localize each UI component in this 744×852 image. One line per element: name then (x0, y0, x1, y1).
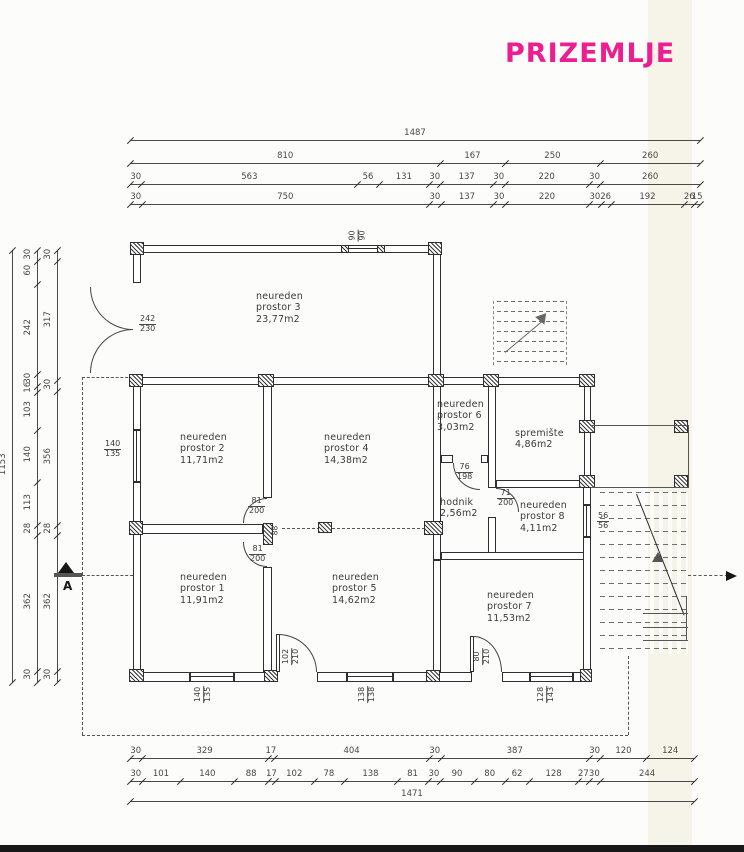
dimension-value: 220 (527, 173, 567, 182)
dimension-value: 17 (251, 747, 291, 756)
pillar-hatch (341, 245, 349, 253)
dimension-value: 88 (231, 770, 271, 779)
dimension-line (130, 801, 694, 802)
opening-size-label: 9090 (349, 229, 368, 241)
wall-segment (133, 377, 593, 385)
dimension-value: 30 (479, 173, 519, 182)
dimension-tick (54, 377, 61, 384)
dimension-tick (426, 755, 433, 762)
dimension-value: 30 (116, 770, 156, 779)
scan-bottom-bar (0, 845, 744, 852)
dimension-tick (138, 181, 145, 188)
dimension-value: 362 (44, 586, 53, 616)
stair-direction-arrow (652, 552, 664, 562)
staircase (596, 492, 688, 654)
dimension-tick (34, 522, 41, 529)
dimension-line (57, 250, 58, 682)
terrace-outline (688, 425, 689, 488)
dimension-value: 404 (332, 747, 372, 756)
dimension-value: 30 (24, 363, 33, 393)
pillar-hatch (318, 522, 332, 533)
dimension-tick (586, 755, 593, 762)
dimension-value: 329 (185, 747, 225, 756)
dimension-tick (127, 798, 134, 805)
dimension-row-top-4: 30750301373022030261922615 (0, 0, 744, 852)
dimension-tick (127, 201, 134, 208)
window (347, 672, 393, 682)
staircase-edge (686, 596, 687, 641)
dimension-tick (608, 201, 615, 208)
dimension-value: 1153 (0, 449, 7, 479)
wall-segment (502, 672, 530, 682)
dimension-tick (34, 427, 41, 434)
dimension-value: 28 (44, 513, 53, 543)
dimension-value: 103 (24, 394, 33, 424)
floorplan-sheet: PRIZEMLJE 1487 810167250260 305635613130… (0, 0, 744, 852)
dimension-value: 30 (575, 193, 615, 202)
dimension-tick (138, 201, 145, 208)
pillar-hatch (428, 242, 442, 255)
dimension-row-bottom-total: 1471 (0, 0, 744, 852)
dimension-tick (34, 479, 41, 486)
section-marker-label: A (63, 579, 72, 593)
room-label-prostor-5: neureden prostor 5 14,62m2 (332, 572, 379, 606)
dimension-value: 317 (44, 304, 53, 334)
dimension-line (130, 184, 700, 185)
dimension-tick (354, 181, 361, 188)
dimension-line (130, 204, 700, 205)
dimension-tick (376, 181, 383, 188)
window (348, 245, 378, 253)
dimension-line (130, 140, 700, 141)
dimension-tick (394, 778, 401, 785)
dimension-row-bottom-1: 30329174043038730120124 (0, 0, 744, 852)
entrance-stairs (493, 301, 567, 365)
opening-size-label: 80210 (473, 648, 492, 665)
dimension-tick (585, 778, 592, 785)
dimension-tick (575, 778, 582, 785)
dimension-tick (501, 160, 508, 167)
dimension-tick (437, 160, 444, 167)
dimension-value: 26 (586, 193, 626, 202)
dimension-tick (597, 181, 604, 188)
dimension-tick (265, 755, 272, 762)
dimension-value: 30 (24, 239, 33, 269)
dimension-tick (586, 181, 593, 188)
opening-size-label: 128143 (537, 686, 556, 703)
dimension-value: 90 (437, 770, 477, 779)
pillar-hatch (377, 245, 385, 253)
dashed-interior-wall (282, 528, 425, 529)
pillar-hatch (426, 670, 440, 682)
room-label-prostor-3: neureden prostor 3 23,77m2 (256, 291, 303, 325)
dimension-tick (177, 778, 184, 785)
pillar-hatch (579, 374, 595, 387)
dimension-value: 81 (393, 770, 433, 779)
wall-segment (433, 560, 441, 672)
dimension-value: 30 (574, 770, 614, 779)
dimension-value: 750 (265, 193, 305, 202)
dimension-tick (426, 181, 433, 188)
room-label-prostor-8: neureden prostor 8 4,11m2 (520, 500, 567, 534)
dimension-value: 128 (534, 770, 574, 779)
wall-segment (441, 552, 591, 560)
opening-size-label: 5656 (597, 512, 609, 531)
dimension-tick (526, 778, 533, 785)
dimension-tick (597, 755, 604, 762)
dimension-value: 250 (532, 152, 572, 161)
dimension-value: 28 (24, 513, 33, 543)
dimension-tick (697, 181, 704, 188)
dimension-tick (501, 181, 508, 188)
opening-size-label: 71200 (497, 489, 514, 508)
dimension-value: 30 (44, 239, 53, 269)
dimension-value: 30 (415, 193, 455, 202)
pillar-hatch (428, 374, 444, 387)
dimension-value: 810 (265, 152, 305, 161)
dashed-outline-top (82, 377, 133, 378)
dimension-value: 80 (470, 770, 510, 779)
dimension-tick (138, 755, 145, 762)
staircase-landing (643, 640, 688, 641)
wall-segment (263, 385, 272, 498)
wall-segment (496, 480, 591, 488)
pillar-hatch (580, 669, 592, 682)
dimension-value: 102 (274, 770, 314, 779)
dimension-value: 30 (575, 173, 615, 182)
dimension-row-bottom-2: 3010114088171027813881309080621282730244 (0, 0, 744, 852)
dimension-tick (437, 755, 444, 762)
room-label-prostor-2: neureden prostor 2 11,71m2 (180, 432, 227, 466)
dimension-value: 356 (44, 441, 53, 471)
dimension-line (12, 250, 13, 682)
dimension-line (130, 781, 694, 782)
dimension-tick (54, 668, 61, 675)
pillar-hatch (129, 521, 143, 535)
terrace-outline (591, 425, 689, 426)
dimension-tick (502, 778, 509, 785)
dimension-value: 30 (415, 173, 455, 182)
dashed-outline-bottom (82, 735, 628, 736)
dimension-tick (127, 137, 134, 144)
wall-segment (393, 672, 427, 682)
room-label-prostor-6: neureden prostor 6 3,03m2 (437, 399, 484, 433)
dimension-value: 62 (497, 770, 537, 779)
dimension-tick (597, 160, 604, 167)
dimension-tick (265, 778, 272, 785)
dimension-value: 167 (452, 152, 492, 161)
dimension-tick (34, 258, 41, 265)
dimension-value: 387 (495, 747, 535, 756)
wall-segment (488, 385, 496, 488)
dimension-tick (272, 778, 279, 785)
pillar-hatch (130, 242, 144, 255)
dimension-line (37, 250, 38, 682)
wall-segment (583, 537, 591, 682)
dimension-line (130, 163, 700, 164)
wall-segment (317, 672, 347, 682)
dimension-tick (471, 778, 478, 785)
dimension-tick (34, 388, 41, 395)
opening-size-label: 102210 (282, 648, 301, 665)
dimension-value: 362 (24, 586, 33, 616)
dimension-value: 140 (24, 440, 33, 470)
dimension-line (130, 758, 694, 759)
wall-segment (441, 455, 453, 463)
dimension-tick (127, 160, 134, 167)
dimension-tick (437, 778, 444, 785)
window (530, 672, 573, 682)
dimension-tick (54, 532, 61, 539)
dimension-value: 27 (563, 770, 603, 779)
dimension-value: 563 (229, 173, 269, 182)
dimension-tick (502, 201, 509, 208)
wall-segment (481, 455, 488, 463)
dimension-tick (34, 247, 41, 254)
dimension-tick (34, 668, 41, 675)
pillar-hatch (129, 669, 144, 682)
dimension-tick (54, 258, 61, 265)
dimension-tick (425, 778, 432, 785)
dimension-value: 120 (603, 747, 643, 756)
dimension-tick (586, 201, 593, 208)
dimension-value: 220 (527, 193, 567, 202)
dimension-value: 30 (575, 747, 615, 756)
staircase-landing (643, 613, 688, 614)
opening-size-label: 138138 (358, 686, 377, 703)
dimension-value: 30 (24, 660, 33, 690)
dimension-tick (490, 181, 497, 188)
opening-size-label: 76198 (456, 463, 473, 482)
dimension-tick (271, 755, 278, 762)
dimension-tick (54, 522, 61, 529)
window (190, 672, 234, 682)
room-label-prostor-4: neureden prostor 4 14,38m2 (324, 432, 371, 466)
opening-size-label: 81200 (249, 545, 266, 564)
dimension-tick (490, 201, 497, 208)
dimension-tick (341, 778, 348, 785)
dimension-tick (598, 201, 605, 208)
pillar-hatch (424, 521, 443, 535)
section-line-arrow (726, 571, 737, 581)
dimension-value: 30 (116, 747, 156, 756)
opening-size-label: 140135 (104, 440, 121, 459)
terrace-outline (591, 487, 689, 488)
dimension-row-top-3: 3056356131301373022030260 (0, 0, 744, 852)
wall-segment (133, 482, 141, 682)
dimension-tick (54, 247, 61, 254)
section-marker-triangle (58, 562, 74, 573)
dimension-value: 131 (384, 173, 424, 182)
pillar-hatch (258, 374, 274, 387)
dimension-tick (54, 388, 61, 395)
pillar-hatch (129, 374, 143, 387)
pillar-hatch (674, 420, 688, 433)
room-label-hodnik: hodnik 2,56m2 (440, 497, 478, 520)
dimension-tick (34, 281, 41, 288)
room-label-prostor-1: neureden prostor 1 11,91m2 (180, 572, 227, 606)
wall-segment (439, 672, 472, 682)
dimension-tick (34, 532, 41, 539)
wall-segment (133, 245, 348, 253)
wall-segment (263, 567, 272, 672)
dimension-col-left-total: 1153 (0, 0, 744, 852)
dimension-value: 1471 (392, 790, 432, 799)
dimension-value: 56 (348, 173, 388, 182)
dashed-outline-right (628, 656, 629, 735)
dimension-row-top-total: 1487 (0, 0, 744, 852)
dimension-tick (697, 201, 704, 208)
dimension-tick (127, 181, 134, 188)
pier-width-label: 88 (270, 526, 279, 536)
dimension-value: 137 (447, 193, 487, 202)
section-marker-bar (54, 573, 82, 577)
dimension-tick (691, 201, 698, 208)
pillar-hatch (483, 374, 499, 387)
dimension-col-left-3: 30317303562836230 (0, 0, 744, 852)
dimension-value: 101 (141, 770, 181, 779)
dimension-tick (54, 679, 61, 686)
dimension-value: 16 (24, 372, 33, 402)
section-line-right (688, 575, 728, 576)
dimension-tick (34, 679, 41, 686)
dimension-tick (597, 778, 604, 785)
dimension-tick (127, 778, 134, 785)
dimension-value: 17 (251, 770, 291, 779)
dimension-value: 137 (447, 173, 487, 182)
dimension-value: 30 (116, 193, 156, 202)
dimension-tick (231, 778, 238, 785)
dimension-tick (9, 247, 16, 254)
wall-segment (234, 672, 265, 682)
dimension-value: 30 (479, 193, 519, 202)
opening-size-label: 140135 (194, 686, 213, 703)
dimension-tick (9, 679, 16, 686)
staircase-landing (643, 627, 688, 628)
dimension-tick (34, 371, 41, 378)
dimension-value: 78 (309, 770, 349, 779)
door-arc (90, 329, 133, 373)
section-line-left (82, 575, 133, 576)
opening-size-label: 242230 (139, 315, 156, 334)
door-arc (90, 287, 133, 330)
dimension-value: 60 (24, 256, 33, 286)
dimension-value: 242 (24, 312, 33, 342)
dimension-value: 138 (350, 770, 390, 779)
page-title: PRIZEMLJE (505, 38, 675, 69)
opening-size-label: 81200 (248, 497, 265, 516)
dimension-tick (437, 181, 444, 188)
dimension-tick (426, 201, 433, 208)
dimension-tick (138, 778, 145, 785)
dimension-value: 30 (44, 369, 53, 399)
pillar-hatch (579, 420, 595, 433)
dimension-value: 30 (414, 770, 454, 779)
window (583, 505, 591, 537)
dimension-tick (34, 382, 41, 389)
window (133, 430, 141, 482)
dimension-tick (311, 778, 318, 785)
dimension-value: 140 (187, 770, 227, 779)
wall-segment (133, 524, 263, 534)
dashed-outline-left (82, 377, 83, 735)
dimension-col-left-2: 306024230161031401132836230 (0, 0, 744, 852)
dimension-value: 30 (415, 747, 455, 756)
dimension-value: 113 (24, 487, 33, 517)
dimension-tick (438, 201, 445, 208)
dimension-tick (697, 137, 704, 144)
dimension-value: 30 (116, 173, 156, 182)
dimension-tick (127, 755, 134, 762)
dimension-value: 30 (44, 660, 53, 690)
dimension-row-top-2: 810167250260 (0, 0, 744, 852)
dimension-tick (697, 160, 704, 167)
room-label-prostor-7: neureden prostor 7 11,53m2 (487, 590, 534, 624)
room-label-spremiste: spremište 4,86m2 (515, 428, 564, 451)
dimension-value: 1487 (395, 129, 435, 138)
